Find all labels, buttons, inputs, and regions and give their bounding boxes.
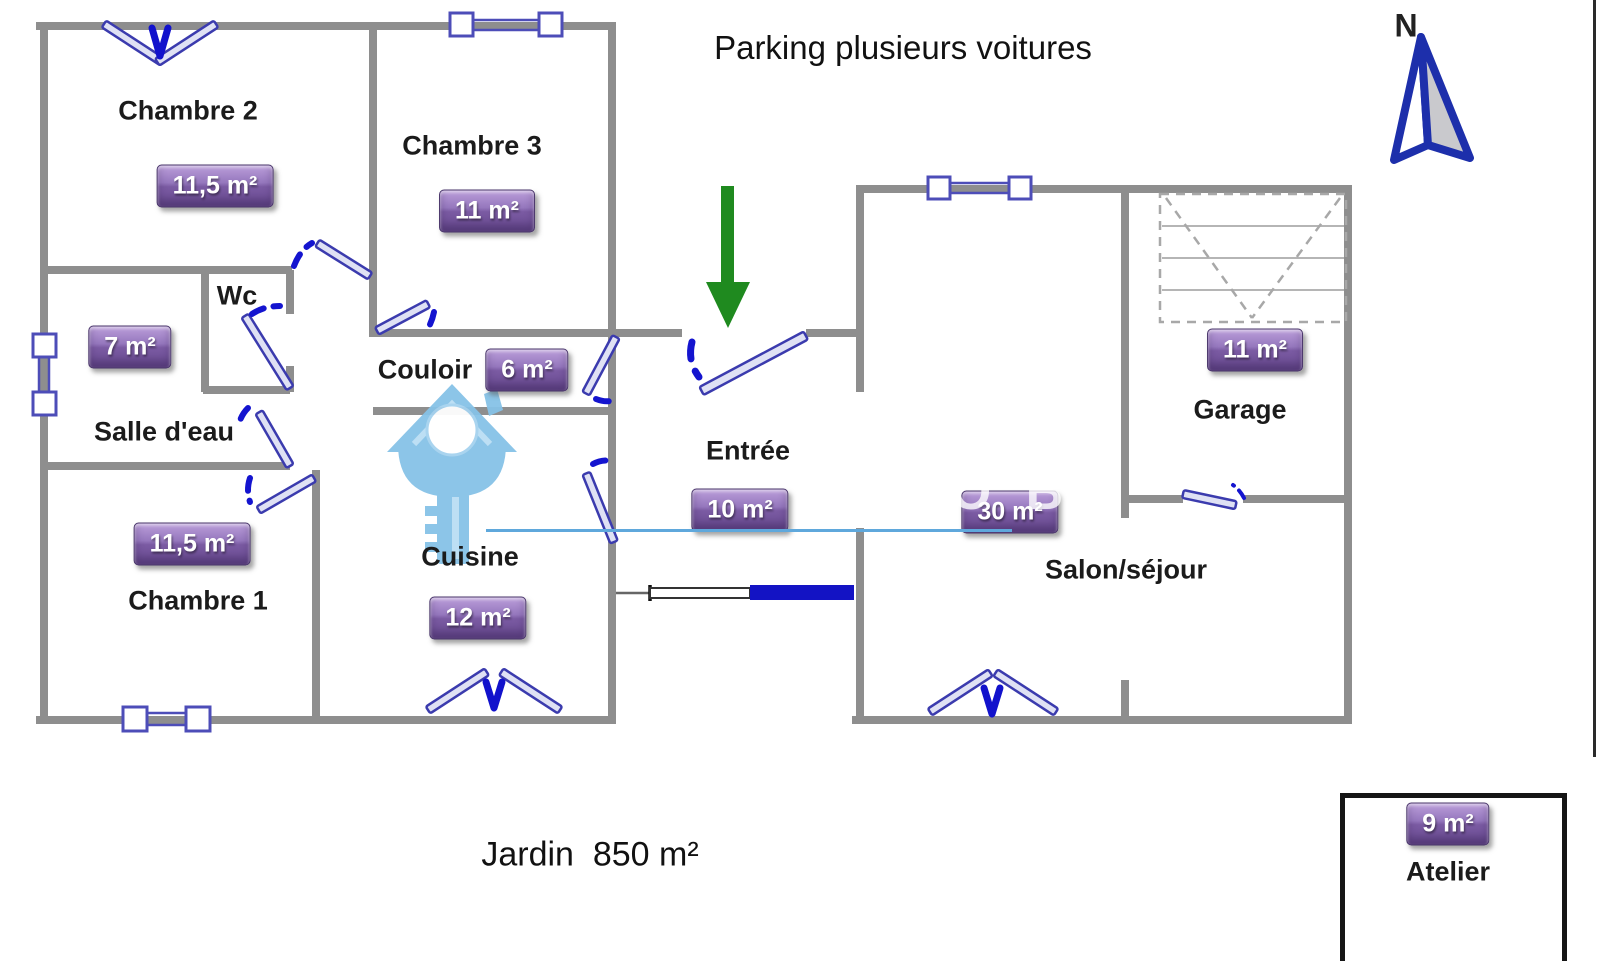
stairs-steps bbox=[1162, 226, 1344, 290]
key-tooth bbox=[425, 506, 438, 516]
north-arrow-right-half bbox=[1421, 37, 1470, 158]
room-label-cuisine: Cuisine bbox=[421, 542, 519, 573]
area-badge-salle-deau: 7 m² bbox=[88, 326, 171, 369]
room-label-garage: Garage bbox=[1193, 395, 1286, 426]
double-door-arrow-cuisine bbox=[486, 682, 502, 708]
door-leaf-entrance bbox=[699, 332, 807, 395]
door-leaf-cuisine-left bbox=[426, 669, 489, 714]
door-leaf-chambre2 bbox=[315, 240, 372, 280]
area-badge-chambre3: 11 m² bbox=[439, 190, 535, 233]
watermark-text-fragment: O B bbox=[951, 462, 1073, 522]
door-swing-arc-garage bbox=[1233, 485, 1244, 498]
door-leaf-cuisine-right bbox=[499, 669, 562, 714]
room-label-couloir: Couloir bbox=[378, 355, 473, 386]
door-swing-arc-chambre1 bbox=[248, 478, 250, 502]
area-badge-entree: 10 m² bbox=[691, 489, 788, 532]
area-badge-cuisine: 12 m² bbox=[429, 597, 526, 640]
area-badge-garage: 11 m² bbox=[1207, 329, 1303, 372]
watermark-text-fragment: DE F bbox=[1185, 515, 1278, 554]
room-label-salon: Salon/séjour bbox=[1045, 555, 1207, 586]
area-badge-chambre1: 11,5 m² bbox=[134, 523, 251, 566]
door-leaf-chambre1 bbox=[257, 475, 316, 514]
sliding-door bbox=[616, 585, 854, 601]
door-leaf-salle-deau bbox=[256, 410, 294, 468]
north-label: N bbox=[1394, 8, 1417, 45]
door-leaf-salon-right bbox=[993, 669, 1058, 715]
room-label-entree: Entrée bbox=[706, 436, 790, 467]
room-label-chambre3: Chambre 3 bbox=[402, 131, 542, 162]
door-swing-arc-salle-deau bbox=[238, 408, 248, 428]
sliding-door-panel-open bbox=[650, 588, 750, 598]
door-leaf-garage bbox=[1182, 490, 1236, 509]
area-badge-chambre2: 11,5 m² bbox=[157, 165, 274, 208]
north-arrow-icon bbox=[1394, 37, 1470, 160]
floor-plan-page: O B DE F Chambre 2 Chambre 3 Wc Salle d'… bbox=[0, 0, 1600, 961]
jardin-annotation: Jardin 850 m² bbox=[481, 836, 698, 875]
double-door-arrow-salon bbox=[984, 688, 1000, 714]
stairs-icon bbox=[1160, 194, 1346, 322]
room-label-chambre1: Chambre 1 bbox=[128, 586, 268, 617]
door-swing-arc-chambre2 bbox=[294, 243, 312, 266]
door-swing-arc-entrance bbox=[691, 342, 699, 377]
door-leaves bbox=[102, 21, 1237, 716]
area-badge-atelier: 9 m² bbox=[1406, 803, 1489, 846]
room-label-wc: Wc bbox=[217, 281, 258, 312]
door-swing-arc-chambre3 bbox=[427, 312, 434, 330]
room-label-atelier: Atelier bbox=[1406, 857, 1490, 888]
watermark-line bbox=[486, 529, 1012, 532]
door-leaf-wc bbox=[242, 314, 294, 390]
area-badge-couloir: 6 m² bbox=[485, 349, 568, 392]
parking-annotation: Parking plusieurs voitures bbox=[714, 29, 1092, 67]
entrance-arrow-icon bbox=[706, 186, 750, 328]
room-label-chambre2: Chambre 2 bbox=[118, 96, 258, 127]
key-hole bbox=[427, 405, 477, 455]
room-label-salle-deau: Salle d'eau bbox=[94, 417, 234, 448]
key-tooth bbox=[425, 524, 438, 534]
sliding-door-panel-closed bbox=[750, 585, 854, 600]
